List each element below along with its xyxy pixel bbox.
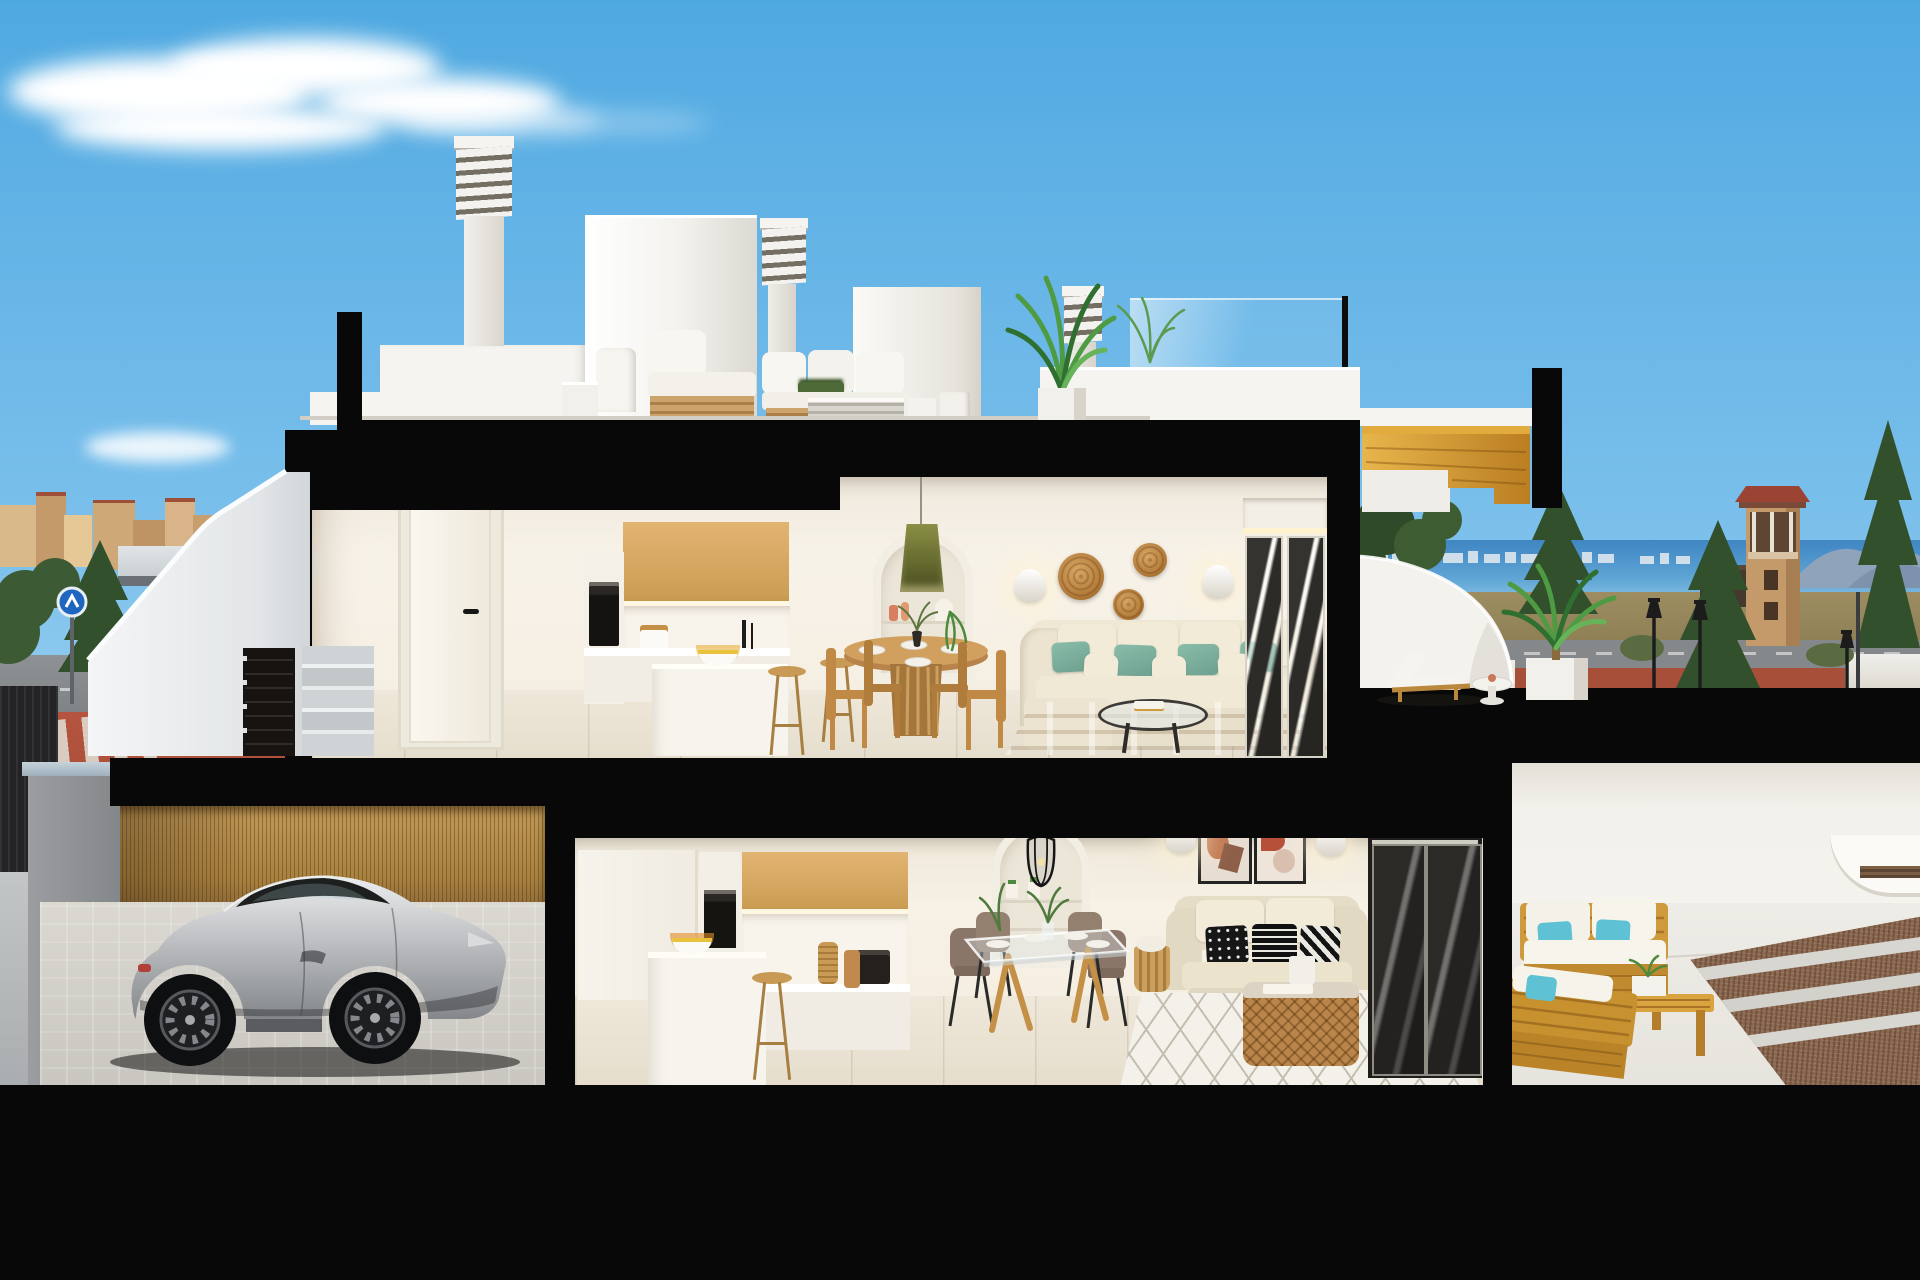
sea bbox=[1325, 540, 1920, 594]
roof-table-white bbox=[562, 382, 598, 416]
niche-shelf bbox=[881, 621, 965, 624]
stool-leg bbox=[753, 982, 766, 1080]
floor-basket bbox=[1134, 946, 1170, 992]
roof-parapet-left-step bbox=[310, 392, 385, 425]
niche-plant-pot bbox=[1028, 882, 1040, 898]
chimney-shaft bbox=[464, 216, 504, 346]
art-shape bbox=[1273, 849, 1295, 873]
plant-pot bbox=[1289, 956, 1315, 984]
road-right-dash bbox=[1380, 652, 1920, 655]
roof-chair-white bbox=[596, 348, 636, 412]
stool-seat bbox=[820, 658, 856, 668]
stool-leg bbox=[845, 666, 855, 742]
art-shape bbox=[1261, 829, 1285, 851]
stool-ring bbox=[759, 1042, 785, 1045]
chimney-louvers bbox=[762, 226, 806, 285]
pendant-cord bbox=[920, 477, 922, 526]
bar-stool bbox=[820, 658, 856, 744]
dry-field bbox=[1325, 592, 1920, 642]
kitchen-upper-cabinets bbox=[623, 522, 789, 606]
stool-ring bbox=[826, 713, 850, 716]
niche-deco bbox=[935, 599, 953, 621]
stool-leg bbox=[822, 666, 832, 742]
sliding-glass-door-lower bbox=[1368, 838, 1482, 1078]
niche-vase bbox=[901, 602, 909, 621]
rattan-jars bbox=[818, 942, 838, 984]
lower-floor bbox=[575, 838, 1483, 1088]
chimney-louvers bbox=[1064, 295, 1102, 344]
cushion bbox=[648, 372, 756, 398]
niche-vase bbox=[889, 605, 898, 621]
town-building bbox=[64, 515, 92, 567]
town-building bbox=[233, 503, 263, 565]
kitchen-counter bbox=[584, 648, 790, 656]
top-book bbox=[1263, 984, 1313, 994]
driveway bbox=[40, 902, 575, 1087]
rattan-wall-disc bbox=[1058, 553, 1104, 600]
counter-pot bbox=[640, 630, 668, 648]
niche-shelf bbox=[881, 646, 965, 649]
reed-fence bbox=[58, 806, 545, 908]
glass-panel bbox=[1426, 844, 1482, 1076]
wall-sconce bbox=[1014, 569, 1046, 603]
bw-pillow-dots bbox=[1205, 925, 1249, 965]
wall-sconce bbox=[1166, 822, 1196, 854]
stool-leg bbox=[795, 675, 805, 755]
town-building bbox=[0, 505, 38, 567]
rattan-wall-disc bbox=[1133, 543, 1167, 577]
built-in-oven bbox=[589, 582, 619, 646]
chimney-shaft bbox=[768, 284, 796, 354]
coffee-table-round bbox=[1098, 699, 1206, 755]
glass-panel bbox=[1287, 536, 1325, 758]
pendant-lamp-olive bbox=[900, 524, 944, 592]
upper-terrace-floor bbox=[1360, 660, 1515, 688]
stair-top-band bbox=[1358, 408, 1534, 426]
table-decor bbox=[1134, 701, 1164, 709]
blanket bbox=[1136, 936, 1166, 952]
neighbor-parapet-top bbox=[1845, 654, 1920, 690]
wood-slat-accent bbox=[1860, 866, 1920, 878]
cloud-small bbox=[85, 432, 230, 462]
stool-seat bbox=[752, 972, 792, 984]
coffee-machine bbox=[856, 950, 890, 984]
rattan-coffee-table bbox=[1243, 982, 1359, 1066]
kitchen-upper-cabinets bbox=[742, 852, 908, 914]
roof-terrace bbox=[280, 120, 1400, 430]
roof-armchair bbox=[648, 326, 758, 422]
town-building bbox=[36, 492, 66, 571]
glass-panel bbox=[1245, 536, 1283, 758]
stool-ring bbox=[774, 724, 800, 727]
carport bbox=[0, 680, 580, 1090]
wall-sconce bbox=[1316, 825, 1346, 857]
lower-terrace bbox=[1512, 763, 1920, 1085]
town-warehouse bbox=[118, 546, 236, 586]
roof-parapet-left bbox=[380, 345, 586, 425]
wall-sconce bbox=[1202, 565, 1234, 599]
cushion bbox=[856, 352, 904, 394]
bar-stool bbox=[752, 972, 792, 1084]
blind-header bbox=[1243, 498, 1327, 534]
cushion bbox=[652, 330, 706, 376]
stool-leg bbox=[770, 675, 780, 755]
sliding-glass-door-upper bbox=[1243, 498, 1327, 758]
door-handle bbox=[463, 609, 479, 614]
glass-railing bbox=[1130, 298, 1344, 369]
kitchen-island bbox=[648, 952, 766, 1085]
roof-floor-shadow bbox=[300, 416, 1150, 420]
stair-support-wedge bbox=[1362, 468, 1450, 512]
niche-shelf bbox=[1000, 928, 1082, 931]
teal-pillow bbox=[1113, 644, 1156, 676]
glass-panel bbox=[1372, 844, 1426, 1076]
door-track bbox=[1372, 840, 1478, 844]
roof-parapet-right-band bbox=[1040, 367, 1360, 420]
chimney-louvers bbox=[456, 146, 512, 220]
art-frame bbox=[1198, 820, 1252, 884]
bar-stool bbox=[768, 666, 806, 756]
niche-plant-pot bbox=[1006, 884, 1018, 898]
niche-shelf bbox=[1000, 900, 1082, 903]
render-canvas bbox=[0, 0, 1920, 1280]
art-frame bbox=[1254, 822, 1306, 884]
town-building bbox=[260, 518, 305, 568]
stool-leg bbox=[778, 982, 791, 1080]
arched-niche bbox=[992, 822, 1090, 968]
pillar-cap bbox=[22, 762, 124, 776]
stool-seat bbox=[768, 666, 806, 677]
faucet bbox=[742, 620, 746, 648]
